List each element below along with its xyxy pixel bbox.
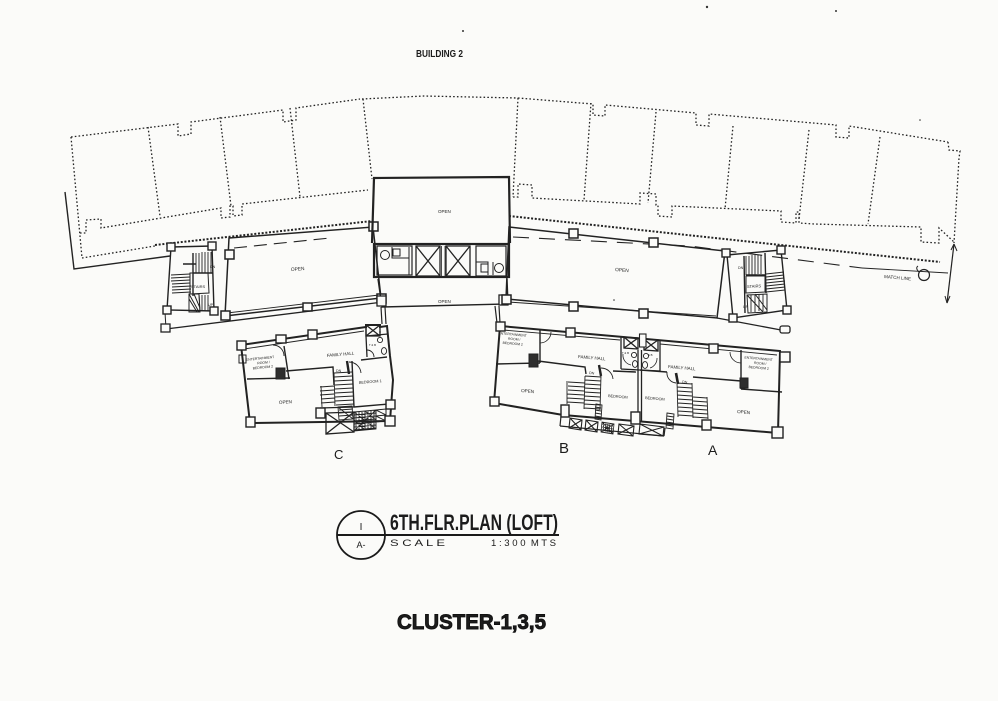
svg-text:CLUSTER-1,3,5: CLUSTER-1,3,5: [397, 610, 546, 634]
svg-text:OPEN: OPEN: [438, 299, 451, 304]
svg-text:1 : 3 0 0 M T S: 1 : 3 0 0 M T S: [491, 538, 556, 548]
svg-text:FAMILY HALL: FAMILY HALL: [578, 354, 606, 361]
svg-text:6TH.FLR.PLAN (LOFT): 6TH.FLR.PLAN (LOFT): [390, 510, 558, 535]
svg-text:DN: DN: [589, 371, 595, 375]
svg-text:BEDROOM 1: BEDROOM 1: [359, 379, 382, 385]
svg-text:I: I: [360, 522, 363, 533]
svg-text:OPEN: OPEN: [279, 399, 292, 405]
svg-text:DN: DN: [336, 369, 342, 373]
svg-text:STAIRS: STAIRS: [747, 283, 762, 289]
svg-text:A-: A-: [357, 540, 366, 550]
svg-text:MATCH LINE: MATCH LINE: [884, 274, 911, 281]
svg-text:C: C: [334, 447, 343, 462]
svg-text:BUILDING 2: BUILDING 2: [416, 48, 463, 60]
svg-text:FAMILY HALL: FAMILY HALL: [327, 351, 355, 358]
svg-text:OPEN: OPEN: [438, 209, 451, 214]
svg-text:S C A L E: S C A L E: [390, 538, 445, 549]
svg-text:DN: DN: [210, 265, 216, 269]
svg-text:B: B: [559, 440, 569, 457]
svg-text:OPEN: OPEN: [737, 409, 750, 415]
svg-text:OPEN: OPEN: [521, 388, 534, 394]
svg-text:DN: DN: [738, 266, 744, 270]
svg-text:STAIRS: STAIRS: [191, 284, 205, 289]
svg-text:DN: DN: [682, 380, 688, 384]
svg-text:BEDROOM: BEDROOM: [608, 394, 628, 400]
svg-text:UP: UP: [743, 305, 749, 309]
svg-text:A: A: [708, 442, 718, 458]
svg-text:BEDROOM 2: BEDROOM 2: [748, 365, 769, 371]
svg-text:BEDROOM 2: BEDROOM 2: [253, 364, 274, 370]
svg-text:T & B: T & B: [622, 351, 629, 355]
svg-text:FAMILY HALL: FAMILY HALL: [668, 364, 696, 371]
svg-text:& B: & B: [648, 353, 653, 357]
svg-text:OPEN: OPEN: [291, 266, 306, 273]
svg-text:BEDROOM: BEDROOM: [645, 396, 665, 402]
svg-text:T & B: T & B: [369, 343, 376, 347]
svg-text:OPEN: OPEN: [615, 267, 630, 274]
svg-text:BEDROOM 2: BEDROOM 2: [502, 341, 523, 347]
